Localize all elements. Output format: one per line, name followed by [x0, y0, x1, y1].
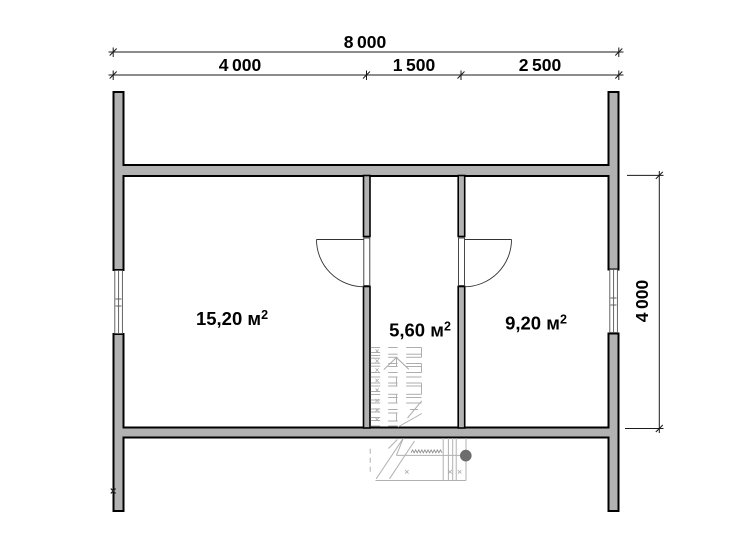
svg-text:8 000: 8 000: [344, 32, 387, 52]
svg-text:5,60 м2: 5,60 м2: [389, 320, 451, 341]
svg-text:1 500: 1 500: [393, 55, 436, 75]
svg-text:4 000: 4 000: [632, 280, 652, 323]
svg-text:2 500: 2 500: [519, 55, 562, 75]
svg-text:4 000: 4 000: [219, 55, 262, 75]
svg-text:9,20 м2: 9,20 м2: [505, 313, 567, 334]
svg-text:15,20 м2: 15,20 м2: [196, 308, 268, 329]
